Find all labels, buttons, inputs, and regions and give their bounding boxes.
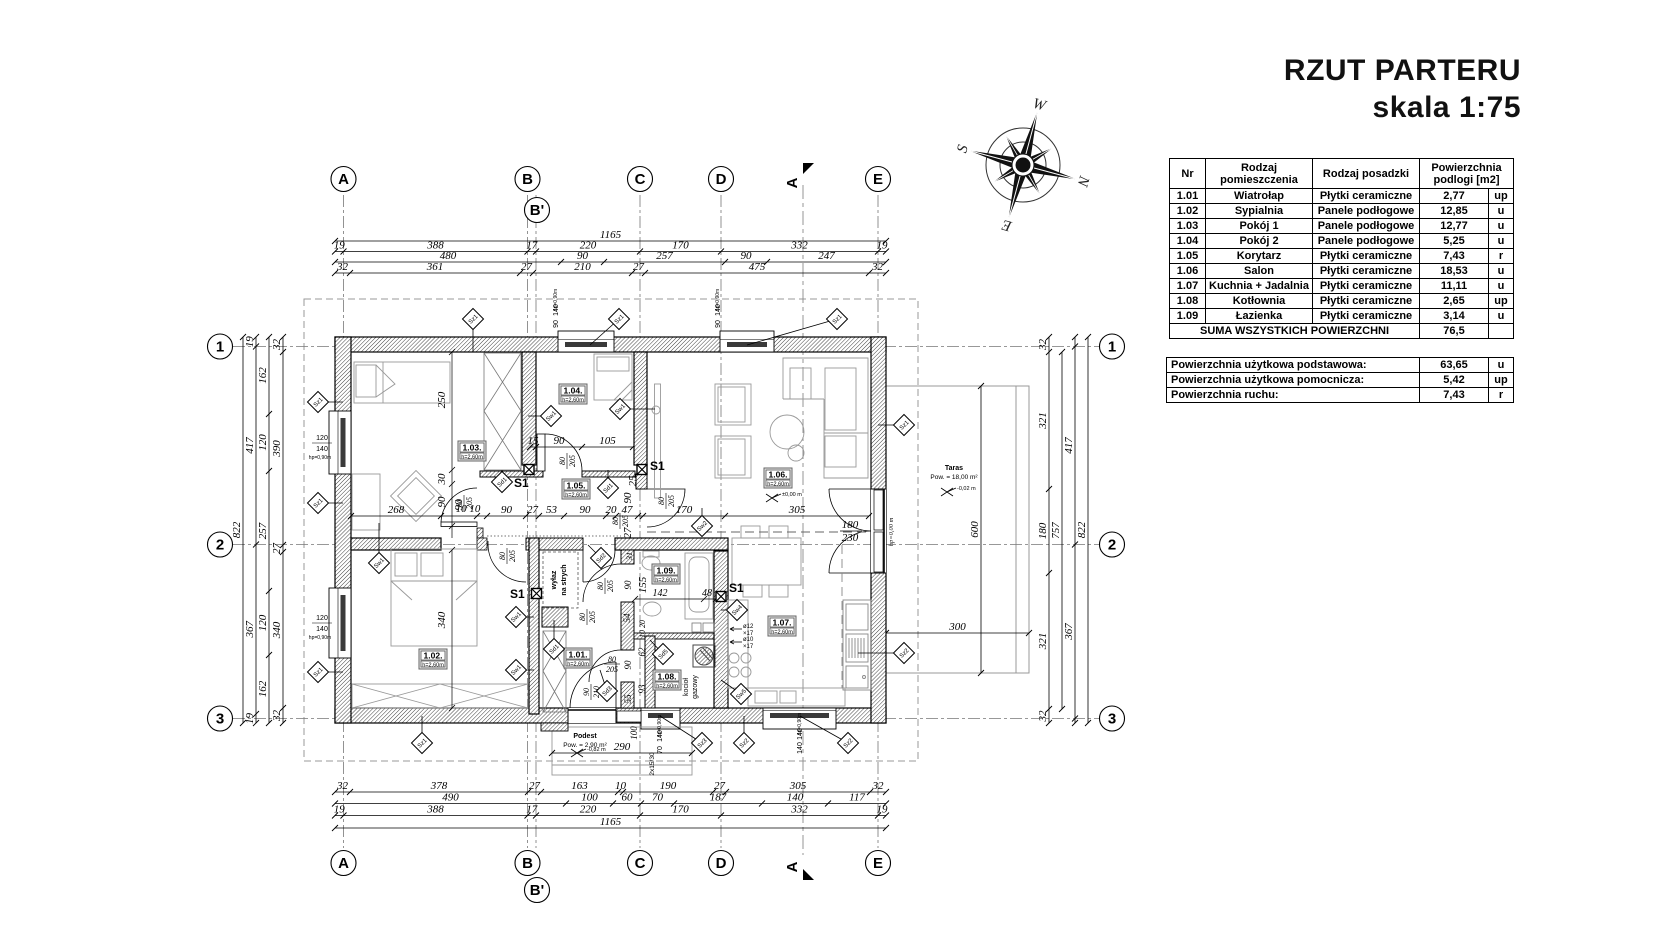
svg-text:170: 170 (676, 504, 693, 516)
svg-text:100: 100 (629, 726, 639, 740)
svg-text:54: 54 (622, 613, 632, 623)
svg-text:332: 332 (790, 804, 808, 816)
svg-text:32: 32 (1037, 710, 1049, 723)
svg-text:E: E (873, 855, 883, 872)
svg-text:822: 822 (231, 521, 243, 538)
svg-text:321: 321 (1037, 412, 1049, 430)
svg-text:247: 247 (818, 250, 835, 262)
svg-text:90: 90 (622, 492, 634, 504)
svg-text:27: 27 (521, 261, 533, 273)
svg-text:220: 220 (580, 804, 597, 816)
svg-text:80: 80 (608, 655, 616, 664)
svg-text:155: 155 (637, 576, 649, 593)
svg-text:1165: 1165 (600, 816, 622, 828)
svg-text:100: 100 (581, 792, 598, 804)
svg-text:19: 19 (334, 804, 346, 816)
svg-text:19: 19 (334, 240, 346, 252)
svg-text:2: 2 (1108, 537, 1116, 554)
svg-text:E: E (1000, 216, 1014, 234)
svg-text:hp=0,90m: hp=0,90m (309, 635, 331, 641)
svg-text:×17: ×17 (743, 644, 754, 650)
svg-text:80: 80 (596, 582, 605, 590)
svg-text:105: 105 (599, 435, 616, 447)
svg-text:80: 80 (611, 517, 620, 525)
svg-text:205: 205 (465, 497, 474, 509)
svg-text:117: 117 (849, 792, 865, 804)
svg-text:367: 367 (244, 621, 256, 639)
svg-text:h=2,60m: h=2,60m (655, 578, 677, 584)
svg-text:268: 268 (388, 504, 405, 516)
svg-text:27: 27 (271, 543, 283, 555)
svg-text:140: 140 (316, 626, 328, 633)
svg-text:ø12: ø12 (743, 624, 754, 630)
svg-text:162: 162 (257, 680, 269, 697)
svg-text:390: 390 (271, 440, 283, 458)
svg-text:B': B' (530, 202, 544, 219)
svg-text:250: 250 (436, 391, 448, 408)
svg-text:-0,82 m: -0,82 m (587, 747, 606, 753)
svg-text:h=2,60m: h=2,60m (422, 663, 444, 669)
svg-text:±0,00 m: ±0,00 m (782, 492, 802, 498)
svg-text:80: 80 (578, 613, 587, 621)
svg-text:210: 210 (574, 261, 591, 273)
svg-text:90: 90 (715, 320, 722, 328)
svg-text:1.02.: 1.02. (424, 651, 443, 661)
svg-text:S1: S1 (729, 581, 744, 595)
svg-text:10: 10 (615, 780, 627, 792)
svg-text:A: A (338, 171, 349, 188)
svg-text:205: 205 (568, 455, 577, 467)
svg-text:822: 822 (1076, 521, 1088, 538)
svg-text:2x15/30: 2x15/30 (649, 752, 656, 776)
svg-text:27: 27 (529, 780, 541, 792)
svg-text:A: A (784, 861, 801, 872)
svg-text:1.08.: 1.08. (658, 672, 677, 682)
svg-text:10 20: 10 20 (638, 620, 647, 638)
svg-text:90: 90 (580, 504, 592, 516)
svg-text:S1: S1 (650, 459, 665, 473)
svg-text:hp=0,00 m: hp=0,00 m (888, 517, 895, 546)
svg-text:162: 162 (257, 367, 269, 384)
svg-text:90: 90 (623, 660, 633, 670)
svg-text:3: 3 (216, 711, 224, 728)
svg-text:80: 80 (558, 457, 567, 465)
svg-text:32: 32 (271, 339, 283, 352)
svg-text:205: 205 (606, 665, 618, 674)
svg-text:60: 60 (622, 792, 634, 804)
svg-text:na strych: na strych (561, 564, 568, 595)
svg-text:32: 32 (336, 780, 349, 792)
svg-text:B': B' (530, 882, 544, 899)
svg-text:180: 180 (842, 519, 859, 531)
svg-text:80: 80 (657, 497, 666, 505)
svg-text:1.06.: 1.06. (769, 470, 788, 480)
svg-text:417: 417 (244, 437, 256, 454)
svg-text:90: 90 (553, 320, 560, 328)
svg-text:E: E (873, 171, 883, 188)
svg-text:340: 340 (436, 611, 448, 629)
svg-text:48: 48 (702, 588, 712, 599)
svg-text:70: 70 (657, 746, 664, 754)
svg-text:90: 90 (501, 504, 513, 516)
svg-text:90: 90 (436, 496, 448, 508)
svg-text:305: 305 (789, 780, 807, 792)
svg-text:hp=0,90m: hp=0,90m (553, 289, 559, 311)
svg-text:490: 490 (442, 792, 459, 804)
svg-text:140: 140 (316, 446, 328, 453)
svg-text:90: 90 (582, 688, 591, 696)
svg-text:205: 205 (508, 550, 517, 562)
svg-text:Podest: Podest (573, 733, 597, 740)
svg-text:361: 361 (426, 261, 444, 273)
svg-text:h=2,60m: h=2,60m (771, 630, 793, 636)
svg-text:1.09.: 1.09. (657, 566, 676, 576)
svg-text:Taras: Taras (945, 465, 963, 472)
svg-text:1.03.: 1.03. (463, 443, 482, 453)
svg-text:1.07.: 1.07. (773, 618, 792, 628)
svg-text:170: 170 (672, 804, 689, 816)
svg-text:90: 90 (554, 435, 566, 447)
svg-text:19: 19 (244, 336, 256, 348)
svg-text:-0,02 m: -0,02 m (957, 486, 976, 492)
svg-text:27: 27 (633, 261, 645, 273)
svg-text:17: 17 (526, 804, 538, 816)
svg-text:W: W (1031, 96, 1049, 115)
svg-text:2: 2 (216, 537, 224, 554)
svg-text:378: 378 (430, 780, 448, 792)
svg-text:25: 25 (627, 475, 639, 487)
svg-text:257: 257 (656, 250, 673, 262)
svg-text:27: 27 (622, 527, 634, 539)
svg-text:180: 180 (1037, 522, 1049, 539)
svg-text:S: S (954, 143, 972, 155)
svg-text:230: 230 (842, 532, 859, 544)
svg-text:B: B (522, 171, 533, 188)
svg-text:321: 321 (1037, 633, 1049, 651)
svg-text:163: 163 (571, 780, 588, 792)
svg-text:32: 32 (1037, 339, 1049, 352)
svg-text:300: 300 (948, 621, 966, 633)
svg-text:gazowy: gazowy (692, 675, 699, 699)
svg-text:120: 120 (316, 435, 328, 442)
svg-text:C: C (635, 855, 646, 872)
svg-text:80: 80 (498, 552, 507, 560)
svg-text:27: 27 (714, 780, 726, 792)
svg-text:h=2,60m: h=2,60m (767, 482, 789, 488)
svg-text:ø10: ø10 (743, 637, 754, 643)
svg-text:205: 205 (667, 495, 676, 507)
svg-text:19: 19 (877, 804, 889, 816)
svg-text:31: 31 (625, 552, 634, 561)
svg-text:19: 19 (244, 713, 256, 725)
svg-text:187: 187 (710, 792, 727, 804)
svg-text:140: 140 (797, 742, 804, 754)
svg-text:120: 120 (316, 615, 328, 622)
svg-text:388: 388 (426, 804, 444, 816)
svg-text:205: 205 (588, 611, 597, 623)
svg-text:55: 55 (623, 694, 633, 704)
svg-text:47: 47 (622, 504, 634, 516)
svg-text:340: 340 (271, 621, 283, 639)
svg-text:32: 32 (872, 780, 885, 792)
svg-text:D: D (716, 171, 727, 188)
svg-text:hp=0,90m: hp=0,90m (657, 715, 663, 737)
svg-text:h=2,60m: h=2,60m (567, 662, 589, 668)
svg-text:257: 257 (257, 522, 269, 539)
svg-text:S1: S1 (514, 476, 529, 490)
svg-text:3: 3 (1108, 711, 1116, 728)
svg-text:h=2,60m: h=2,60m (656, 684, 678, 690)
svg-text:A: A (338, 855, 349, 872)
svg-text:90: 90 (623, 580, 633, 590)
svg-text:wyłaz: wyłaz (551, 570, 558, 590)
svg-text:15: 15 (528, 435, 540, 447)
svg-text:475: 475 (749, 261, 766, 273)
svg-text:70: 70 (652, 792, 664, 804)
svg-text:1: 1 (1108, 339, 1116, 356)
svg-text:h=2,60m: h=2,60m (562, 398, 584, 404)
svg-text:h=2,60m: h=2,60m (461, 455, 483, 461)
svg-text:367: 367 (1063, 623, 1075, 641)
svg-text:19: 19 (877, 240, 889, 252)
svg-text:h=2,60m: h=2,60m (565, 493, 587, 499)
svg-text:Pow. = 18,00 m²: Pow. = 18,00 m² (930, 474, 978, 481)
svg-text:305: 305 (788, 504, 806, 516)
svg-text:1: 1 (216, 339, 224, 356)
svg-text:A: A (784, 177, 801, 188)
svg-text:332: 332 (790, 240, 808, 252)
svg-text:140: 140 (787, 792, 804, 804)
svg-text:205: 205 (606, 580, 615, 592)
svg-text:1.01.: 1.01. (569, 650, 588, 660)
svg-text:190: 190 (660, 780, 677, 792)
svg-text:17: 17 (526, 240, 538, 252)
svg-text:32: 32 (336, 261, 349, 273)
svg-text:B: B (522, 855, 533, 872)
svg-text:80: 80 (455, 499, 464, 507)
svg-text:hp=0,90m: hp=0,90m (715, 289, 721, 311)
svg-text:417: 417 (1063, 437, 1075, 454)
svg-text:1.05.: 1.05. (567, 481, 586, 491)
svg-text:32: 32 (871, 261, 884, 273)
svg-text:C: C (635, 171, 646, 188)
svg-text:30: 30 (436, 473, 448, 486)
svg-text:62: 62 (637, 647, 647, 657)
svg-text:93: 93 (637, 684, 647, 694)
svg-text:120: 120 (257, 614, 269, 631)
svg-text:S1: S1 (510, 587, 525, 601)
svg-text:kocioł: kocioł (683, 678, 690, 696)
svg-text:1165: 1165 (600, 229, 622, 241)
svg-text:290: 290 (614, 741, 631, 753)
svg-text:20: 20 (606, 504, 618, 516)
svg-text:757: 757 (1050, 522, 1062, 539)
svg-text:170: 170 (672, 240, 689, 252)
svg-text:D: D (716, 855, 727, 872)
svg-text:N: N (1074, 173, 1093, 189)
svg-text:205: 205 (621, 515, 630, 527)
svg-text:hp=0,90m: hp=0,90m (309, 455, 331, 461)
svg-text:32: 32 (271, 710, 283, 723)
svg-text:120: 120 (257, 434, 269, 451)
svg-text:53: 53 (546, 504, 558, 516)
svg-text:1.04.: 1.04. (564, 386, 583, 396)
svg-text:142: 142 (653, 588, 668, 599)
svg-text:600: 600 (969, 521, 981, 538)
svg-text:27: 27 (527, 504, 539, 516)
